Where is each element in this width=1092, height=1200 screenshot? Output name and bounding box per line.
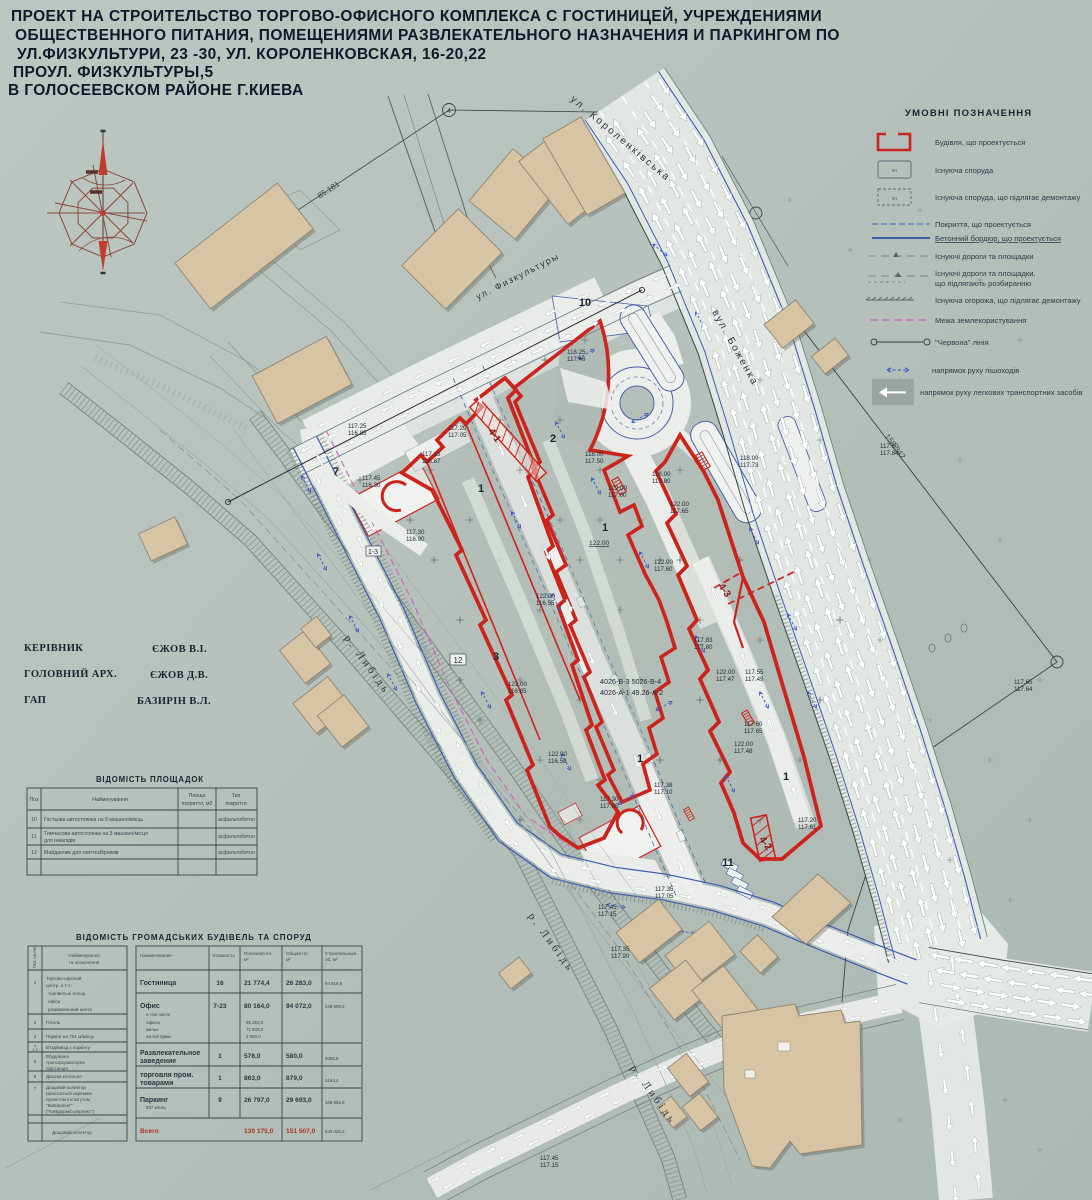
svg-text:117.48: 117.48 [734, 748, 753, 755]
svg-text:напрямок руху пішоходів: напрямок руху пішоходів [932, 366, 1019, 375]
svg-text:6: 6 [34, 1074, 37, 1079]
svg-text:Паркінг на 751 м/місць: Паркінг на 751 м/місць [46, 1034, 95, 1039]
svg-text:12: 12 [31, 850, 37, 856]
svg-text:116.85: 116.85 [348, 430, 367, 437]
svg-text:11: 11 [722, 857, 734, 869]
svg-text:117.05: 117.05 [655, 893, 674, 900]
svg-text:Найменування: Найменування [92, 796, 128, 803]
svg-text:4026-А-1 49.26-А-2: 4026-А-1 49.26-А-2 [600, 688, 663, 697]
svg-text:26 797,0: 26 797,0 [244, 1097, 270, 1104]
svg-text:жилой прим.: жилой прим. [146, 1034, 172, 1039]
svg-text:21 774,4: 21 774,4 [244, 980, 270, 987]
svg-text:Існуюча огорожа, що підлягає д: Існуюча огорожа, що підлягає демонтажу [935, 296, 1081, 305]
svg-text:117.80: 117.80 [652, 478, 671, 485]
svg-text:в том числе ,: в том числе , [146, 1012, 173, 1017]
svg-text:7: 7 [333, 466, 339, 478]
svg-text:11: 11 [31, 834, 36, 840]
svg-text:ОБЩЕСТВЕННОГО ПИТАНИЯ, ПОМЕЩЕН: ОБЩЕСТВЕННОГО ПИТАНИЯ, ПОМЕЩЕНИЯМИ РАЗВЛ… [15, 27, 840, 44]
svg-text:1: 1 [637, 753, 643, 765]
svg-text:КЕРІВНИК: КЕРІВНИК [24, 643, 83, 654]
svg-text:117.80: 117.80 [694, 644, 713, 651]
svg-text:кн: кн [892, 196, 897, 202]
svg-text:Наименование: Наименование [140, 953, 172, 958]
svg-text:116.90: 116.90 [406, 536, 425, 543]
svg-text:122.00: 122.00 [548, 751, 567, 758]
svg-text:117.35: 117.35 [655, 886, 674, 893]
svg-text:122.00: 122.00 [608, 485, 627, 492]
svg-text:338 699,2: 338 699,2 [325, 1004, 345, 1009]
svg-text:розважальний центр: розважальний центр [48, 1006, 93, 1012]
svg-text:117.15: 117.15 [540, 1162, 559, 1169]
svg-text:1-3: 1-3 [32, 1048, 38, 1052]
svg-text:122.00: 122.00 [716, 669, 735, 676]
svg-text:м²: м² [244, 957, 249, 962]
svg-text:офисы: офисы [146, 1020, 160, 1025]
svg-text:117.38: 117.38 [654, 782, 673, 789]
svg-text:торговля пром.: торговля пром. [140, 1072, 194, 1079]
svg-text:Всего: Всего [140, 1128, 159, 1135]
svg-text:117.20: 117.20 [448, 425, 467, 432]
svg-text:підстанція: підстанція [46, 1066, 68, 1071]
svg-text:94 818,8: 94 818,8 [325, 981, 343, 986]
svg-text:117.25: 117.25 [348, 423, 367, 430]
svg-text:Развлекательное: Развлекательное [140, 1050, 200, 1057]
svg-text:117.50: 117.50 [585, 458, 604, 465]
svg-text:130 175,0: 130 175,0 [244, 1128, 274, 1135]
svg-text:16: 16 [216, 980, 224, 987]
svg-text:жилье: жилье [146, 1027, 159, 1032]
svg-text:12: 12 [454, 656, 463, 665]
svg-text:Межа землекористування: Межа землекористування [935, 316, 1026, 325]
svg-text:117.64: 117.64 [1014, 686, 1033, 693]
svg-text:Торгово-офісний: Торгово-офісний [46, 975, 82, 981]
svg-text:117.61: 117.61 [798, 824, 817, 831]
svg-text:асфальтобетон: асфальтобетон [218, 850, 255, 856]
svg-text:117.35: 117.35 [611, 946, 630, 953]
svg-text:товарами: товарами [140, 1080, 173, 1087]
svg-text:117.60: 117.60 [654, 566, 673, 573]
svg-text:117.45: 117.45 [362, 475, 381, 482]
svg-text:Гостьова автостоянка на 9 маши: Гостьова автостоянка на 9 машино/місць [44, 817, 143, 823]
svg-text:Дощовий колектор: Дощовий колектор [46, 1084, 86, 1090]
svg-text:Этажность: Этажность [212, 953, 235, 958]
svg-text:117.60: 117.60 [744, 721, 763, 728]
svg-text:543 425,2: 543 425,2 [325, 1129, 345, 1134]
svg-text:УМОВНІ ПОЗНАЧЕННЯ: УМОВНІ ПОЗНАЧЕННЯ [905, 108, 1032, 119]
svg-text:117.30: 117.30 [600, 796, 619, 803]
svg-text:Існуючі дороги та площадки: Існуючі дороги та площадки [935, 252, 1033, 261]
svg-text:7-23: 7-23 [213, 1003, 227, 1010]
svg-text:заведение: заведение [140, 1058, 176, 1065]
svg-text:117.47: 117.47 [716, 676, 735, 683]
svg-text:122.00: 122.00 [589, 540, 610, 547]
svg-text:94 072,0: 94 072,0 [286, 1003, 312, 1010]
svg-text:7: 7 [34, 1086, 37, 1091]
svg-text:122.00: 122.00 [734, 741, 753, 748]
svg-text:Будівля, що проектується: Будівля, що проектується [935, 138, 1025, 147]
svg-text:2088,8: 2088,8 [325, 1056, 339, 1061]
svg-text:116.87: 116.87 [422, 458, 441, 465]
svg-text:Поз. на ген.: Поз. на ген. [32, 945, 37, 968]
svg-text:26 283,0: 26 283,0 [286, 980, 312, 987]
svg-text:3: 3 [493, 651, 499, 663]
svg-text:Покриття, що проектується: Покриття, що проектується [935, 220, 1031, 229]
svg-text:Існуюча споруда: Існуюча споруда [935, 166, 994, 175]
svg-text:117.73: 117.73 [740, 462, 759, 469]
svg-text:580,0: 580,0 [286, 1053, 303, 1060]
svg-text:1: 1 [218, 1075, 222, 1082]
svg-text:Дахова котельня: Дахова котельня [46, 1074, 82, 1079]
svg-text:"Червона" лінія: "Червона" лінія [935, 338, 989, 347]
svg-text:117.65: 117.65 [670, 508, 689, 515]
svg-text:106 994,8: 106 994,8 [325, 1100, 345, 1105]
svg-text:("Київдорміськпроект"): ("Київдорміськпроект") [46, 1109, 95, 1114]
svg-text:10: 10 [579, 297, 591, 309]
svg-text:117.05: 117.05 [448, 432, 467, 439]
svg-text:асфальтобетон: асфальтобетон [218, 817, 255, 823]
svg-text:1: 1 [602, 522, 608, 534]
svg-text:асфальтобетон: асфальтобетон [218, 834, 255, 840]
svg-text:117.60: 117.60 [880, 443, 899, 450]
svg-text:116.55: 116.55 [536, 600, 555, 607]
svg-text:для інвалідів: для інвалідів [44, 838, 75, 844]
svg-text:117.05: 117.05 [600, 803, 619, 810]
svg-text:центр, в т.ч.:: центр, в т.ч.: [46, 983, 72, 988]
svg-text:4: 4 [447, 108, 451, 115]
svg-text:покриття, м2: покриття, м2 [182, 801, 213, 807]
svg-text:116.30: 116.30 [362, 482, 381, 489]
svg-text:Общая пл.: Общая пл. [286, 951, 309, 956]
svg-text:122.00: 122.00 [654, 559, 673, 566]
svg-text:та позначення: та позначення [69, 960, 100, 965]
svg-text:В'їзд/виїзд з паркінгу: В'їзд/виїзд з паркінгу [46, 1045, 91, 1050]
svg-text:Тимчасова автостоянка на 3 маш: Тимчасова автостоянка на 3 машино/місця [44, 831, 148, 837]
svg-text:1: 1 [478, 483, 484, 495]
svg-text:трансформаторна: трансформаторна [46, 1060, 85, 1065]
svg-text:1: 1 [783, 771, 789, 783]
svg-text:117.65: 117.65 [1014, 679, 1033, 686]
svg-text:29 693,0: 29 693,0 [286, 1097, 312, 1104]
svg-text:863,0: 863,0 [244, 1075, 261, 1082]
svg-text:117.30: 117.30 [406, 529, 425, 536]
svg-text:Вбудована: Вбудована [46, 1054, 69, 1059]
svg-text:Існуюча споруда, що підлягає д: Існуюча споруда, що підлягає демонтажу [935, 193, 1081, 202]
svg-text:151 507,0: 151 507,0 [286, 1128, 316, 1135]
svg-text:Існуючі дороги та площадки,: Існуючі дороги та площадки, [935, 269, 1036, 278]
svg-text:80 164,0: 80 164,0 [244, 1003, 270, 1010]
svg-text:БАЗИРІН В.Л.: БАЗИРІН В.Л. [137, 696, 211, 707]
svg-text:2 958,0: 2 958,0 [246, 1034, 261, 1039]
svg-text:об. м³: об. м³ [325, 957, 338, 962]
svg-text:2: 2 [550, 433, 556, 445]
svg-text:ГОЛОВНИЙ АРХ.: ГОЛОВНИЙ АРХ. [24, 668, 117, 680]
svg-text:1-3: 1-3 [368, 549, 378, 556]
svg-text:117.10: 117.10 [654, 789, 673, 796]
svg-text:117.46: 117.46 [567, 356, 586, 363]
svg-text:117.84: 117.84 [880, 450, 899, 457]
svg-text:Найменування: Найменування [68, 952, 100, 958]
svg-text:УЛ.ФИЗКУЛЬТУРИ, 23 -30, УЛ. КО: УЛ.ФИЗКУЛЬТУРИ, 23 -30, УЛ. КОРОЛЕНКОВСК… [17, 46, 486, 63]
svg-text:116.85: 116.85 [508, 688, 527, 695]
svg-text:117.20: 117.20 [611, 953, 630, 960]
svg-text:проектом інститутом: проектом інститутом [46, 1097, 90, 1102]
svg-text:9: 9 [218, 1097, 222, 1104]
svg-text:"Київпроект": "Київпроект" [46, 1103, 73, 1108]
svg-text:10: 10 [31, 817, 37, 823]
svg-text:1: 1 [218, 1053, 222, 1060]
svg-text:Офис: Офис [140, 1003, 160, 1010]
svg-text:118.00: 118.00 [740, 455, 759, 462]
svg-text:2: 2 [34, 1020, 37, 1025]
svg-text:Тип: Тип [232, 793, 241, 799]
svg-text:3: 3 [34, 1034, 37, 1039]
svg-text:86 263,0: 86 263,0 [246, 1020, 264, 1025]
svg-text:кн: кн [892, 168, 897, 174]
svg-text:торгівельні площі: торгівельні площі [48, 991, 85, 996]
svg-text:ГАП: ГАП [24, 695, 46, 706]
svg-text:118.25: 118.25 [567, 349, 586, 356]
svg-text:122.00: 122.00 [508, 681, 527, 688]
svg-text:117.55: 117.55 [745, 669, 764, 676]
svg-text:Площа: Площа [189, 793, 206, 799]
svg-text:Поз: Поз [30, 797, 40, 803]
svg-text:117.65: 117.65 [744, 728, 763, 735]
svg-text:Паркинг: Паркинг [140, 1097, 168, 1104]
svg-text:ВІДОМІСТЬ ПЛОЩАДОК: ВІДОМІСТЬ ПЛОЩАДОК [96, 775, 204, 784]
svg-text:напрямок руху легкових транспо: напрямок руху легкових транспортних засо… [920, 388, 1083, 397]
svg-text:В ГОЛОСЕЕВСКОМ РАЙОНЕ Г.КИЕВА: В ГОЛОСЕЕВСКОМ РАЙОНЕ Г.КИЕВА [8, 81, 304, 99]
svg-text:ЄЖОВ Д.В.: ЄЖОВ Д.В. [150, 670, 208, 681]
svg-text:ВІДОМІСТЬ ГРОМАДСЬКИХ БУДІВЕ: ВІДОМІСТЬ ГРОМАДСЬКИХ БУДІВЕЛЬ ТА СПОРУД [76, 933, 312, 942]
svg-text:122.00: 122.00 [536, 593, 555, 600]
svg-text:118.00: 118.00 [652, 471, 671, 478]
svg-text:Майданчик для сміттєзбірників: Майданчик для сміттєзбірників [44, 849, 119, 856]
svg-text:ПРОЕКТ НА СТРОИТЕЛЬСТВО ТОРГОВ: ПРОЕКТ НА СТРОИТЕЛЬСТВО ТОРГОВО-ОФИСНОГО… [11, 7, 822, 25]
svg-text:Бетонний бордюр, що проектуєть: Бетонний бордюр, що проектується [935, 234, 1061, 243]
svg-text:71 943,0: 71 943,0 [246, 1027, 264, 1032]
svg-text:м²: м² [286, 957, 291, 962]
svg-text:576,0: 576,0 [244, 1053, 261, 1060]
svg-text:Дощовий колектор: Дощовий колектор [52, 1129, 92, 1135]
svg-text:117.83: 117.83 [694, 637, 713, 644]
svg-text:937 місяц: 937 місяц [146, 1105, 166, 1110]
svg-text:122.00: 122.00 [670, 501, 689, 508]
svg-text:1: 1 [34, 980, 37, 985]
svg-text:3164,4: 3164,4 [325, 1078, 339, 1083]
svg-text:117.45: 117.45 [598, 904, 617, 911]
svg-text:(виноситься окремим: (виноситься окремим [46, 1091, 92, 1096]
svg-text:117.20: 117.20 [798, 817, 817, 824]
svg-text:офіси: офіси [48, 999, 61, 1004]
svg-text:Строительный: Строительный [325, 950, 356, 956]
svg-text:117.45: 117.45 [540, 1155, 559, 1162]
svg-text:Полезная пл.: Полезная пл. [244, 951, 272, 956]
svg-text:що підлягають розбиранню: що підлягають розбиранню [935, 279, 1031, 288]
svg-text:Готель: Готель [46, 1020, 61, 1025]
svg-text:879,0: 879,0 [286, 1075, 303, 1082]
svg-text:4026-В-3 5026-В-4: 4026-В-3 5026-В-4 [600, 677, 661, 686]
svg-text:117.49: 117.49 [745, 676, 764, 683]
svg-text:118.00: 118.00 [585, 451, 604, 458]
svg-text:116.58: 116.58 [548, 758, 567, 765]
svg-text:5: 5 [34, 1059, 37, 1064]
svg-text:117.15: 117.15 [422, 451, 441, 458]
svg-text:ЄЖОВ В.І.: ЄЖОВ В.І. [152, 644, 207, 655]
svg-text:Гостиница: Гостиница [140, 980, 176, 987]
svg-text:ПРОУЛ. ФИЗКУЛЬТУРЫ,5: ПРОУЛ. ФИЗКУЛЬТУРЫ,5 [13, 64, 213, 81]
svg-text:117.00: 117.00 [608, 492, 627, 499]
svg-text:117.15: 117.15 [598, 911, 617, 918]
svg-text:покриття: покриття [225, 801, 246, 807]
